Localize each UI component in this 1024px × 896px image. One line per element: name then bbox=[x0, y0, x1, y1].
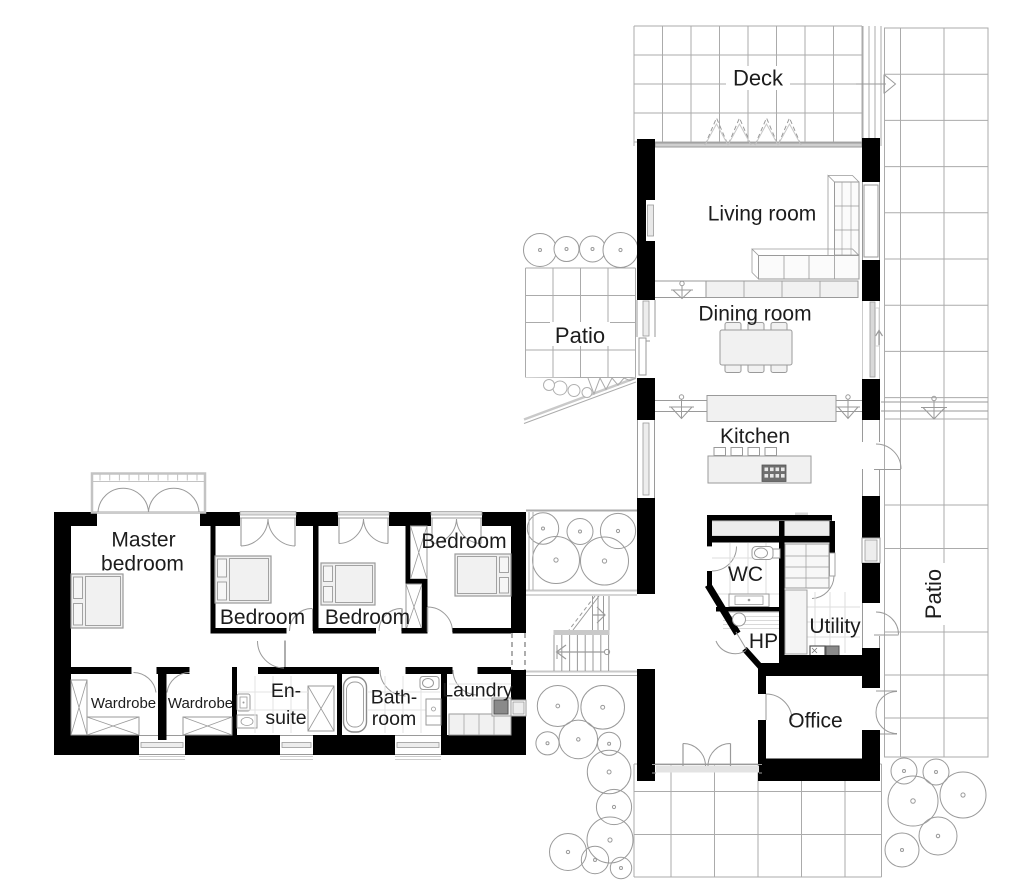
svg-text:Bedroom: Bedroom bbox=[220, 606, 305, 629]
svg-text:Wardrobe: Wardrobe bbox=[91, 695, 156, 712]
svg-text:Kitchen: Kitchen bbox=[720, 425, 790, 448]
svg-text:Bath-: Bath- bbox=[371, 687, 418, 709]
svg-text:bedroom: bedroom bbox=[101, 553, 184, 576]
svg-text:Office: Office bbox=[788, 710, 842, 733]
svg-text:Utility: Utility bbox=[809, 615, 861, 638]
svg-text:Patio: Patio bbox=[921, 569, 946, 619]
svg-text:Wardrobe: Wardrobe bbox=[168, 695, 233, 712]
svg-text:Laundry: Laundry bbox=[442, 680, 513, 702]
svg-text:Living room: Living room bbox=[708, 203, 817, 226]
svg-text:Deck: Deck bbox=[733, 66, 784, 91]
svg-text:Bedroom: Bedroom bbox=[421, 530, 506, 553]
svg-text:room: room bbox=[372, 708, 416, 730]
svg-text:suite: suite bbox=[265, 707, 306, 729]
svg-text:HP: HP bbox=[749, 630, 778, 653]
svg-text:En-: En- bbox=[271, 680, 301, 702]
svg-text:WC: WC bbox=[728, 563, 763, 586]
svg-text:Dining room: Dining room bbox=[698, 303, 811, 326]
svg-text:Master: Master bbox=[111, 529, 175, 552]
svg-text:Bedroom: Bedroom bbox=[325, 606, 410, 629]
svg-text:Patio: Patio bbox=[555, 323, 605, 348]
